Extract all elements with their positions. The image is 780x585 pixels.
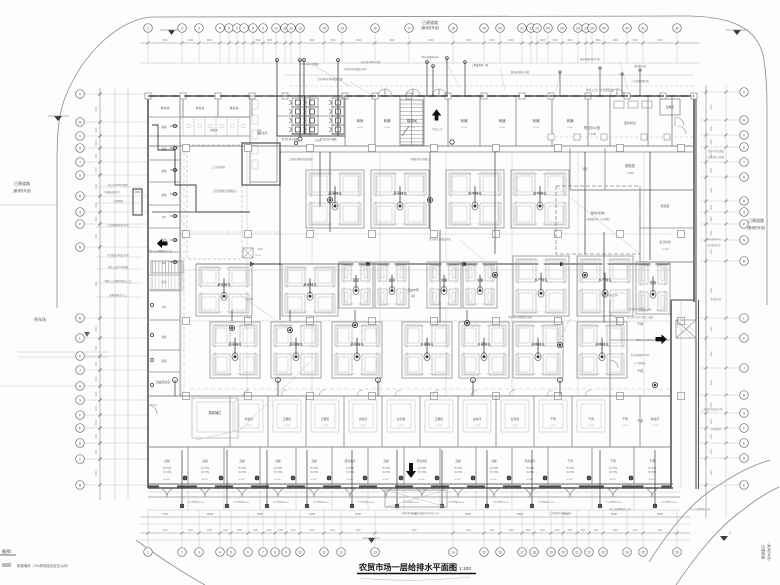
svg-text:地漏排水管预留示意图: 地漏排水管预留示意图 xyxy=(508,315,533,319)
svg-text:商铺: 商铺 xyxy=(239,459,245,463)
svg-text:图例:: 图例: xyxy=(2,548,12,555)
svg-text:3900: 3900 xyxy=(267,39,273,42)
svg-text:库房: 库房 xyxy=(357,118,364,123)
svg-text:B-0007: B-0007 xyxy=(164,479,171,481)
svg-text:2400: 2400 xyxy=(309,530,315,532)
svg-text:1:100: 1:100 xyxy=(459,566,471,572)
svg-text:G: G xyxy=(79,399,82,403)
svg-text:自由市场: 自由市场 xyxy=(407,288,418,292)
svg-text:商铺: 商铺 xyxy=(384,118,391,123)
svg-text:2400: 2400 xyxy=(593,530,599,532)
svg-text:给水管DN50预埋: 给水管DN50预埋 xyxy=(109,183,128,187)
svg-text:Q: Q xyxy=(79,211,82,215)
svg-text:给水管沿梁敷设示意: 给水管沿梁敷设示意 xyxy=(429,237,451,241)
svg-text:2400: 2400 xyxy=(253,530,259,532)
svg-text:3900: 3900 xyxy=(711,448,713,454)
svg-text:16: 16 xyxy=(373,27,377,31)
svg-text:蔬菜: 蔬菜 xyxy=(353,277,360,282)
svg-text:二期预留: 二期预留 xyxy=(113,199,124,203)
svg-text:F: F xyxy=(79,414,81,418)
svg-text:平台截水沟(见大样): 平台截水沟(见大样) xyxy=(107,253,129,257)
svg-text:雨水口见大样出图: 雨水口见大样出图 xyxy=(108,265,129,269)
svg-text:B-0007: B-0007 xyxy=(455,479,462,481)
svg-text:B-0007: B-0007 xyxy=(202,479,209,481)
svg-text:2400: 2400 xyxy=(657,530,663,532)
svg-text:B-0007: B-0007 xyxy=(491,479,498,481)
svg-text:3900: 3900 xyxy=(96,376,98,382)
svg-text:12: 12 xyxy=(339,551,343,555)
svg-text:▽0.00: ▽0.00 xyxy=(357,126,364,129)
svg-text:干调: 干调 xyxy=(550,417,556,421)
svg-text:停车场: 停车场 xyxy=(34,316,46,322)
svg-text:3900: 3900 xyxy=(389,39,395,42)
svg-text:▽0.00: ▽0.00 xyxy=(409,126,416,129)
svg-text:3900: 3900 xyxy=(96,419,98,425)
svg-text:美土后修整铺位入美: 美土后修整铺位入美 xyxy=(609,507,631,511)
svg-text:鲜肉摊位: 鲜肉摊位 xyxy=(533,190,547,195)
svg-text:32: 32 xyxy=(675,27,679,31)
svg-text:商铺给排水预留口: 商铺给排水预留口 xyxy=(410,157,430,161)
svg-text:二次装修隔断(见装修图): 二次装修隔断(见装修图) xyxy=(287,157,313,161)
svg-text:3900: 3900 xyxy=(711,167,713,173)
svg-text:▽-0.02: ▽-0.02 xyxy=(550,424,557,427)
svg-text:▽-0.02: ▽-0.02 xyxy=(360,424,367,427)
svg-text:商铺: 商铺 xyxy=(161,359,167,363)
svg-text:20: 20 xyxy=(498,27,502,31)
svg-text:8: 8 xyxy=(274,551,276,555)
svg-text:▽0.00: ▽0.00 xyxy=(533,126,540,129)
svg-text:3900: 3900 xyxy=(711,402,713,408)
svg-text:3900: 3900 xyxy=(96,405,98,411)
svg-text:4户: 4户 xyxy=(162,215,166,219)
svg-text:商铺: 商铺 xyxy=(567,118,574,123)
svg-text:▽0.00: ▽0.00 xyxy=(461,126,468,129)
svg-text:白条禽: 白条禽 xyxy=(511,417,520,421)
svg-text:4户: 4户 xyxy=(162,305,166,309)
svg-text:2400: 2400 xyxy=(355,530,361,532)
svg-text:3900: 3900 xyxy=(428,39,434,42)
svg-text:农贸市场一层给排水平面图: 农贸市场一层给排水平面图 xyxy=(358,562,457,572)
svg-text:3900: 3900 xyxy=(96,233,98,239)
svg-text:▽ 0.00: ▽ 0.00 xyxy=(588,132,596,136)
svg-text:熟食摊位: 熟食摊位 xyxy=(531,342,545,347)
svg-text:▽0.00: ▽0.00 xyxy=(384,126,391,129)
svg-text:卤菜间: 卤菜间 xyxy=(473,417,482,421)
svg-text:鲜肉摊位: 鲜肉摊位 xyxy=(468,190,482,195)
svg-text:3900: 3900 xyxy=(711,230,713,236)
svg-text:G: G xyxy=(743,412,746,416)
svg-text:3900: 3900 xyxy=(207,39,213,42)
svg-text:2400: 2400 xyxy=(266,530,272,532)
svg-text:商铺: 商铺 xyxy=(499,118,506,123)
svg-text:3900: 3900 xyxy=(632,39,638,42)
svg-text:3900: 3900 xyxy=(96,153,98,159)
svg-text:3: 3 xyxy=(198,551,200,555)
svg-text:B-0007: B-0007 xyxy=(527,479,534,481)
svg-text:11: 11 xyxy=(322,551,326,555)
svg-text:已建道路: 已建道路 xyxy=(761,545,766,560)
svg-text:6: 6 xyxy=(247,551,249,555)
svg-text:25: 25 xyxy=(560,27,564,31)
svg-text:1: 1 xyxy=(147,551,149,555)
svg-text:5: 5 xyxy=(228,27,230,31)
svg-text:2400: 2400 xyxy=(540,530,546,532)
svg-text:2400: 2400 xyxy=(580,530,586,532)
svg-text:4200: 4200 xyxy=(355,512,362,516)
svg-text:排水沟(见大样): 排水沟(见大样) xyxy=(602,293,618,297)
svg-text:14: 14 xyxy=(322,27,326,31)
svg-text:3900: 3900 xyxy=(96,470,98,476)
svg-text:J: J xyxy=(79,369,81,373)
svg-text:3900: 3900 xyxy=(96,216,98,222)
svg-text:1: 1 xyxy=(147,27,149,31)
svg-text:20: 20 xyxy=(561,551,565,555)
svg-text:2400: 2400 xyxy=(162,530,168,532)
svg-text:商铺: 商铺 xyxy=(461,118,468,123)
svg-text:干调: 干调 xyxy=(637,368,643,373)
svg-text:3900: 3900 xyxy=(711,326,713,332)
svg-text:23: 23 xyxy=(601,551,605,555)
svg-text:9300: 9300 xyxy=(257,512,264,516)
svg-text:新建墙体（200厚烧结页岩空心砖）: 新建墙体（200厚烧结页岩空心砖） xyxy=(17,563,70,568)
svg-text:(兼消防车道): (兼消防车道) xyxy=(13,188,31,193)
svg-text:8: 8 xyxy=(252,27,254,31)
svg-text:3900: 3900 xyxy=(162,39,168,42)
svg-text:商铺: 商铺 xyxy=(455,459,461,463)
svg-text:30: 30 xyxy=(625,27,629,31)
svg-text:▽0.00: ▽0.00 xyxy=(499,126,506,129)
svg-text:干调: 干调 xyxy=(637,321,643,326)
svg-text:无障碍坡道入口: 无障碍坡道入口 xyxy=(109,293,127,297)
svg-text:已建道路: 已建道路 xyxy=(748,217,764,223)
svg-text:淋浴: 淋浴 xyxy=(161,125,167,129)
svg-text:男卫生间示意图: 男卫生间示意图 xyxy=(282,137,299,141)
svg-text:2400: 2400 xyxy=(466,530,472,532)
svg-text:2400: 2400 xyxy=(567,530,573,532)
svg-text:18: 18 xyxy=(451,27,455,31)
svg-text:7700: 7700 xyxy=(162,512,169,516)
svg-text:(兼消防车道): (兼消防车道) xyxy=(421,25,439,30)
svg-text:2: 2 xyxy=(181,551,183,555)
svg-text:6900: 6900 xyxy=(611,512,618,516)
svg-text:水果: 水果 xyxy=(441,277,448,282)
svg-text:▽-0.02: ▽-0.02 xyxy=(284,424,291,427)
svg-text:B-0007: B-0007 xyxy=(610,479,617,481)
svg-text:16: 16 xyxy=(498,551,502,555)
svg-text:商铺: 商铺 xyxy=(164,459,170,463)
svg-text:4户: 4户 xyxy=(162,261,166,265)
svg-text:2400: 2400 xyxy=(411,530,417,532)
svg-text:B-0007: B-0007 xyxy=(383,479,390,481)
svg-text:4500: 4500 xyxy=(257,248,263,251)
svg-text:休息房: 休息房 xyxy=(195,105,204,110)
svg-text:3900: 3900 xyxy=(711,469,713,475)
svg-text:26: 26 xyxy=(576,27,580,31)
svg-text:3900: 3900 xyxy=(711,204,713,210)
svg-text:15: 15 xyxy=(482,551,486,555)
svg-text:蔬菜摊位: 蔬菜摊位 xyxy=(217,282,231,287)
svg-text:已建道路: 已建道路 xyxy=(14,180,30,186)
svg-text:2400: 2400 xyxy=(508,530,514,532)
svg-text:3900: 3900 xyxy=(711,287,713,293)
svg-text:正餐区: 正餐区 xyxy=(321,417,330,421)
svg-text:3900: 3900 xyxy=(96,140,98,146)
svg-text:卤菜间: 卤菜间 xyxy=(359,417,368,421)
svg-text:22: 22 xyxy=(587,551,591,555)
svg-text:28: 28 xyxy=(590,27,594,31)
svg-text:3892: 3892 xyxy=(517,512,524,516)
svg-text:3900: 3900 xyxy=(96,202,98,208)
svg-text:9300: 9300 xyxy=(657,512,664,516)
svg-text:3900: 3900 xyxy=(711,248,713,254)
svg-text:25: 25 xyxy=(641,551,645,555)
svg-text:(二次装修平面见大样): (二次装修平面见大样) xyxy=(548,511,571,515)
svg-text:3900: 3900 xyxy=(711,433,713,439)
svg-text:4200: 4200 xyxy=(465,512,472,516)
svg-text:4200: 4200 xyxy=(309,512,316,516)
svg-text:(兼消防车道): (兼消防车道) xyxy=(747,225,765,230)
svg-text:2400: 2400 xyxy=(237,530,243,532)
svg-text:B-0007: B-0007 xyxy=(239,479,246,481)
svg-text:蔬菜摊位: 蔬菜摊位 xyxy=(289,342,303,347)
svg-text:蔬菜摊位: 蔬菜摊位 xyxy=(350,342,364,347)
svg-text:▽-0.02: ▽-0.02 xyxy=(588,424,595,427)
svg-text:蔬菜摊位: 蔬菜摊位 xyxy=(303,282,317,287)
svg-text:物业办公室: 物业办公室 xyxy=(584,125,600,130)
svg-text:▽-0.02: ▽-0.02 xyxy=(474,424,481,427)
svg-text:3900: 3900 xyxy=(96,361,98,367)
svg-text:女卫生间示意图: 女卫生间示意图 xyxy=(320,137,337,141)
svg-text:2400: 2400 xyxy=(554,530,560,532)
svg-text:配电室: 配电室 xyxy=(625,163,635,168)
svg-text:13475: 13475 xyxy=(255,255,262,257)
svg-text:T: T xyxy=(743,161,745,165)
svg-text:平面O形(±0.00前设截水沟平台入口): 平面O形(±0.00前设截水沟平台入口) xyxy=(401,511,439,515)
svg-text:▽-0.02: ▽-0.02 xyxy=(246,424,253,427)
svg-text:23: 23 xyxy=(535,27,539,31)
svg-text:3900: 3900 xyxy=(96,166,98,172)
svg-text:13: 13 xyxy=(373,551,377,555)
svg-text:已建道路: 已建道路 xyxy=(422,19,438,25)
svg-text:生活水池: 生活水池 xyxy=(659,240,670,244)
svg-text:熟食摊位: 熟食摊位 xyxy=(595,342,609,347)
svg-text:3900: 3900 xyxy=(188,39,194,42)
svg-text:B-0007: B-0007 xyxy=(311,479,318,481)
svg-text:3900: 3900 xyxy=(567,39,573,42)
svg-text:J: J xyxy=(743,367,745,371)
svg-text:(见建筑图 装修图示): (见建筑图 装修图示) xyxy=(213,189,236,193)
svg-text:门口做斜坡(见大样): 门口做斜坡(见大样) xyxy=(107,223,129,227)
svg-text:17: 17 xyxy=(407,27,411,31)
svg-text:17: 17 xyxy=(520,551,524,555)
svg-text:值班室: 值班室 xyxy=(660,203,669,208)
svg-text:4: 4 xyxy=(219,551,221,555)
svg-text:商铺: 商铺 xyxy=(533,118,540,123)
svg-text:商铺: 商铺 xyxy=(275,459,281,463)
svg-text:经营用房: 经营用房 xyxy=(345,459,356,463)
svg-text:淋浴: 淋浴 xyxy=(161,238,167,242)
svg-text:熟食间: 熟食间 xyxy=(245,417,254,421)
svg-text:2400: 2400 xyxy=(278,530,284,532)
svg-text:蔬菜摊位: 蔬菜摊位 xyxy=(228,342,242,347)
svg-text:5: 5 xyxy=(230,551,232,555)
svg-text:熟食间: 熟食间 xyxy=(651,417,660,421)
svg-text:2400: 2400 xyxy=(188,530,194,532)
svg-text:蔬菜摊位: 蔬菜摊位 xyxy=(209,410,223,415)
svg-text:淋浴: 淋浴 xyxy=(161,193,167,197)
svg-text:3900: 3900 xyxy=(96,391,98,397)
svg-text:3900: 3900 xyxy=(96,433,98,439)
svg-text:2400: 2400 xyxy=(489,530,495,532)
svg-text:2400: 2400 xyxy=(632,530,638,532)
svg-text:3900: 3900 xyxy=(711,379,713,385)
svg-text:3900: 3900 xyxy=(540,39,546,42)
svg-text:商铺: 商铺 xyxy=(491,459,497,463)
svg-text:商铺: 商铺 xyxy=(383,459,389,463)
svg-text:休息房: 休息房 xyxy=(229,105,238,110)
svg-text:10: 10 xyxy=(298,551,302,555)
svg-text:L: L xyxy=(743,317,745,321)
svg-text:19: 19 xyxy=(549,551,553,555)
svg-text:▽-0.02: ▽-0.02 xyxy=(622,424,629,427)
svg-text:正餐区: 正餐区 xyxy=(435,417,444,421)
svg-text:3900: 3900 xyxy=(96,127,98,133)
svg-text:熟食: 熟食 xyxy=(650,280,657,285)
svg-text:2400: 2400 xyxy=(330,530,336,532)
svg-text:M: M xyxy=(743,260,746,264)
svg-text:3900: 3900 xyxy=(489,39,495,42)
svg-text:▽ -1.8: ▽ -1.8 xyxy=(662,248,669,251)
svg-text:干调: 干调 xyxy=(610,459,616,463)
svg-text:水产摊位: 水产摊位 xyxy=(534,277,548,282)
svg-text:二次装修隔断: 二次装修隔断 xyxy=(211,165,226,169)
svg-text:3900: 3900 xyxy=(508,39,514,42)
svg-text:7: 7 xyxy=(243,27,245,31)
svg-text:干调: 干调 xyxy=(649,459,655,463)
svg-text:15: 15 xyxy=(340,27,344,31)
svg-text:12: 12 xyxy=(289,27,293,31)
svg-text:3900: 3900 xyxy=(96,326,98,332)
svg-text:经营用房: 经营用房 xyxy=(417,459,428,463)
svg-text:14: 14 xyxy=(451,551,455,555)
svg-text:T: T xyxy=(79,161,81,165)
svg-text:F: F xyxy=(743,427,745,431)
svg-text:13: 13 xyxy=(298,27,302,31)
svg-text:3900: 3900 xyxy=(711,104,713,110)
svg-text:21: 21 xyxy=(520,27,524,31)
svg-text:3900: 3900 xyxy=(711,351,713,357)
svg-text:L: L xyxy=(79,337,81,341)
svg-text:31: 31 xyxy=(641,27,645,31)
svg-text:干调: 干调 xyxy=(567,459,573,463)
svg-text:2400: 2400 xyxy=(207,530,213,532)
svg-text:26: 26 xyxy=(675,551,679,555)
svg-text:顾客入口(教学楼出入口): 顾客入口(教学楼出入口) xyxy=(105,279,132,283)
svg-text:9: 9 xyxy=(285,551,287,555)
svg-text:淋浴: 淋浴 xyxy=(161,169,167,173)
svg-text:11: 11 xyxy=(283,27,287,31)
svg-text:3900: 3900 xyxy=(595,39,601,42)
svg-text:6: 6 xyxy=(236,27,238,31)
svg-text:2400: 2400 xyxy=(525,530,531,532)
svg-text:(兼消防车道): (兼消防车道) xyxy=(767,544,772,561)
svg-text:经营用房: 经营用房 xyxy=(525,459,536,463)
svg-text:6900: 6900 xyxy=(207,512,214,516)
svg-text:水果: 水果 xyxy=(477,277,484,282)
svg-text:▽ 0.00: ▽ 0.00 xyxy=(626,172,634,175)
svg-text:3900: 3900 xyxy=(657,39,663,42)
svg-text:3: 3 xyxy=(198,27,200,31)
svg-text:B-0007: B-0007 xyxy=(275,479,282,481)
svg-text:强电间: 强电间 xyxy=(666,105,675,109)
svg-text:3900: 3900 xyxy=(552,39,558,42)
svg-text:室外机位: 室外机位 xyxy=(624,120,636,125)
svg-text:▽-0.02: ▽-0.02 xyxy=(652,424,659,427)
svg-text:商铺: 商铺 xyxy=(202,459,208,463)
svg-text:B-0007: B-0007 xyxy=(419,479,426,481)
svg-text:21: 21 xyxy=(575,551,579,555)
svg-text:自由买卖区: 自由买卖区 xyxy=(156,380,170,384)
svg-text:10: 10 xyxy=(274,27,278,31)
svg-text:3900: 3900 xyxy=(711,139,713,145)
svg-text:水果摊位: 水果摊位 xyxy=(477,342,491,347)
svg-text:正餐区: 正餐区 xyxy=(283,417,292,421)
svg-text:▽-0.02: ▽-0.02 xyxy=(512,424,519,427)
svg-text:9: 9 xyxy=(262,27,264,31)
svg-text:2400: 2400 xyxy=(223,530,229,532)
svg-text:3900: 3900 xyxy=(330,39,336,42)
svg-text:白条禽: 白条禽 xyxy=(397,417,406,421)
svg-text:货车入口(顾客次入口): 货车入口(顾客次入口) xyxy=(148,249,172,253)
svg-text:干调: 干调 xyxy=(622,417,628,421)
svg-text:鲜奶: 鲜奶 xyxy=(161,335,167,339)
svg-text:2400: 2400 xyxy=(290,530,296,532)
svg-text:7: 7 xyxy=(262,551,264,555)
svg-text:3900: 3900 xyxy=(466,39,472,42)
svg-text:楼梯间: 楼梯间 xyxy=(407,118,418,123)
svg-text:24: 24 xyxy=(546,27,550,31)
svg-text:▽-0.02: ▽-0.02 xyxy=(436,424,443,427)
svg-text:▽0.00: ▽0.00 xyxy=(567,126,574,129)
svg-text:3900: 3900 xyxy=(711,187,713,193)
svg-text:24: 24 xyxy=(625,551,629,555)
svg-text:2400: 2400 xyxy=(612,530,618,532)
svg-text:4: 4 xyxy=(219,27,221,31)
svg-text:A区: A区 xyxy=(411,294,416,298)
svg-text:B-0007: B-0007 xyxy=(347,479,354,481)
svg-text:29: 29 xyxy=(602,27,606,31)
svg-text:3900: 3900 xyxy=(711,418,713,424)
svg-text:商铺: 商铺 xyxy=(311,459,317,463)
svg-text:蔬菜: 蔬菜 xyxy=(389,277,396,282)
svg-text:3900: 3900 xyxy=(255,39,261,42)
svg-text:蔬菜摊位: 蔬菜摊位 xyxy=(393,190,407,195)
svg-text:3900: 3900 xyxy=(96,449,98,455)
svg-text:休息房: 休息房 xyxy=(160,105,169,110)
svg-text:3900: 3900 xyxy=(711,125,713,131)
svg-text:超市(生鲜): 超市(生鲜) xyxy=(591,210,605,215)
svg-text:18: 18 xyxy=(532,551,536,555)
svg-text:2: 2 xyxy=(181,27,183,31)
svg-text:水果摊位: 水果摊位 xyxy=(420,342,434,347)
svg-text:3900: 3900 xyxy=(96,345,98,351)
svg-text:3900: 3900 xyxy=(96,183,98,189)
svg-text:水产摊位: 水产摊位 xyxy=(598,277,612,282)
svg-text:3900: 3900 xyxy=(309,39,315,42)
svg-text:3900: 3900 xyxy=(613,39,619,42)
svg-text:19: 19 xyxy=(482,27,486,31)
svg-text:B-0007: B-0007 xyxy=(567,479,574,481)
